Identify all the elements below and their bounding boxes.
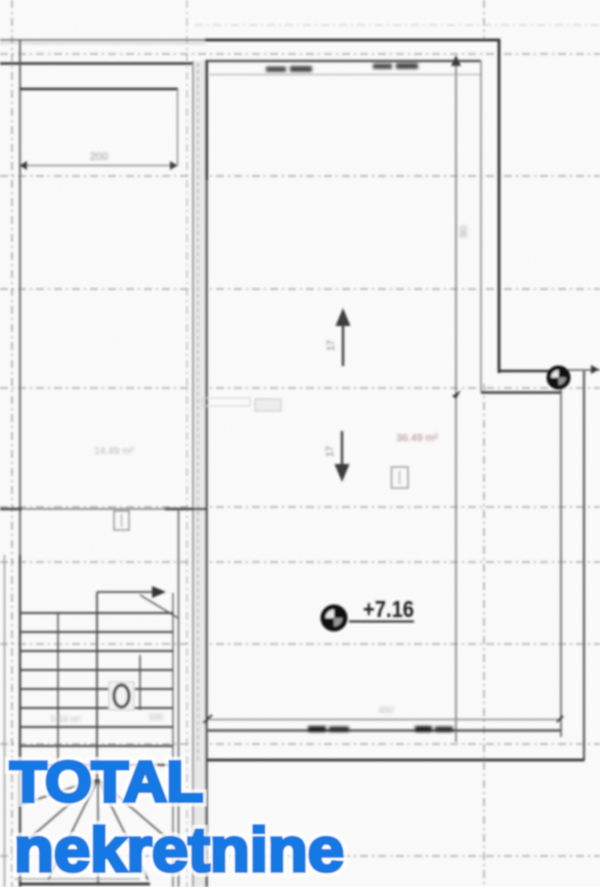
svg-text:+7.16: +7.16 bbox=[363, 596, 414, 622]
svg-text:450: 450 bbox=[378, 705, 393, 715]
svg-text:TOTAL: TOTAL bbox=[10, 750, 203, 814]
svg-text:5.54 m²: 5.54 m² bbox=[51, 714, 82, 724]
svg-text:36.49 m²: 36.49 m² bbox=[396, 432, 438, 444]
svg-text:100: 100 bbox=[148, 712, 163, 722]
svg-text:17: 17 bbox=[325, 445, 336, 457]
svg-text:14.49 m²: 14.49 m² bbox=[94, 446, 134, 457]
svg-text:nekretnine: nekretnine bbox=[14, 816, 344, 885]
svg-text:17: 17 bbox=[326, 339, 337, 351]
svg-text:90: 90 bbox=[458, 226, 470, 238]
svg-text:200: 200 bbox=[90, 151, 108, 163]
